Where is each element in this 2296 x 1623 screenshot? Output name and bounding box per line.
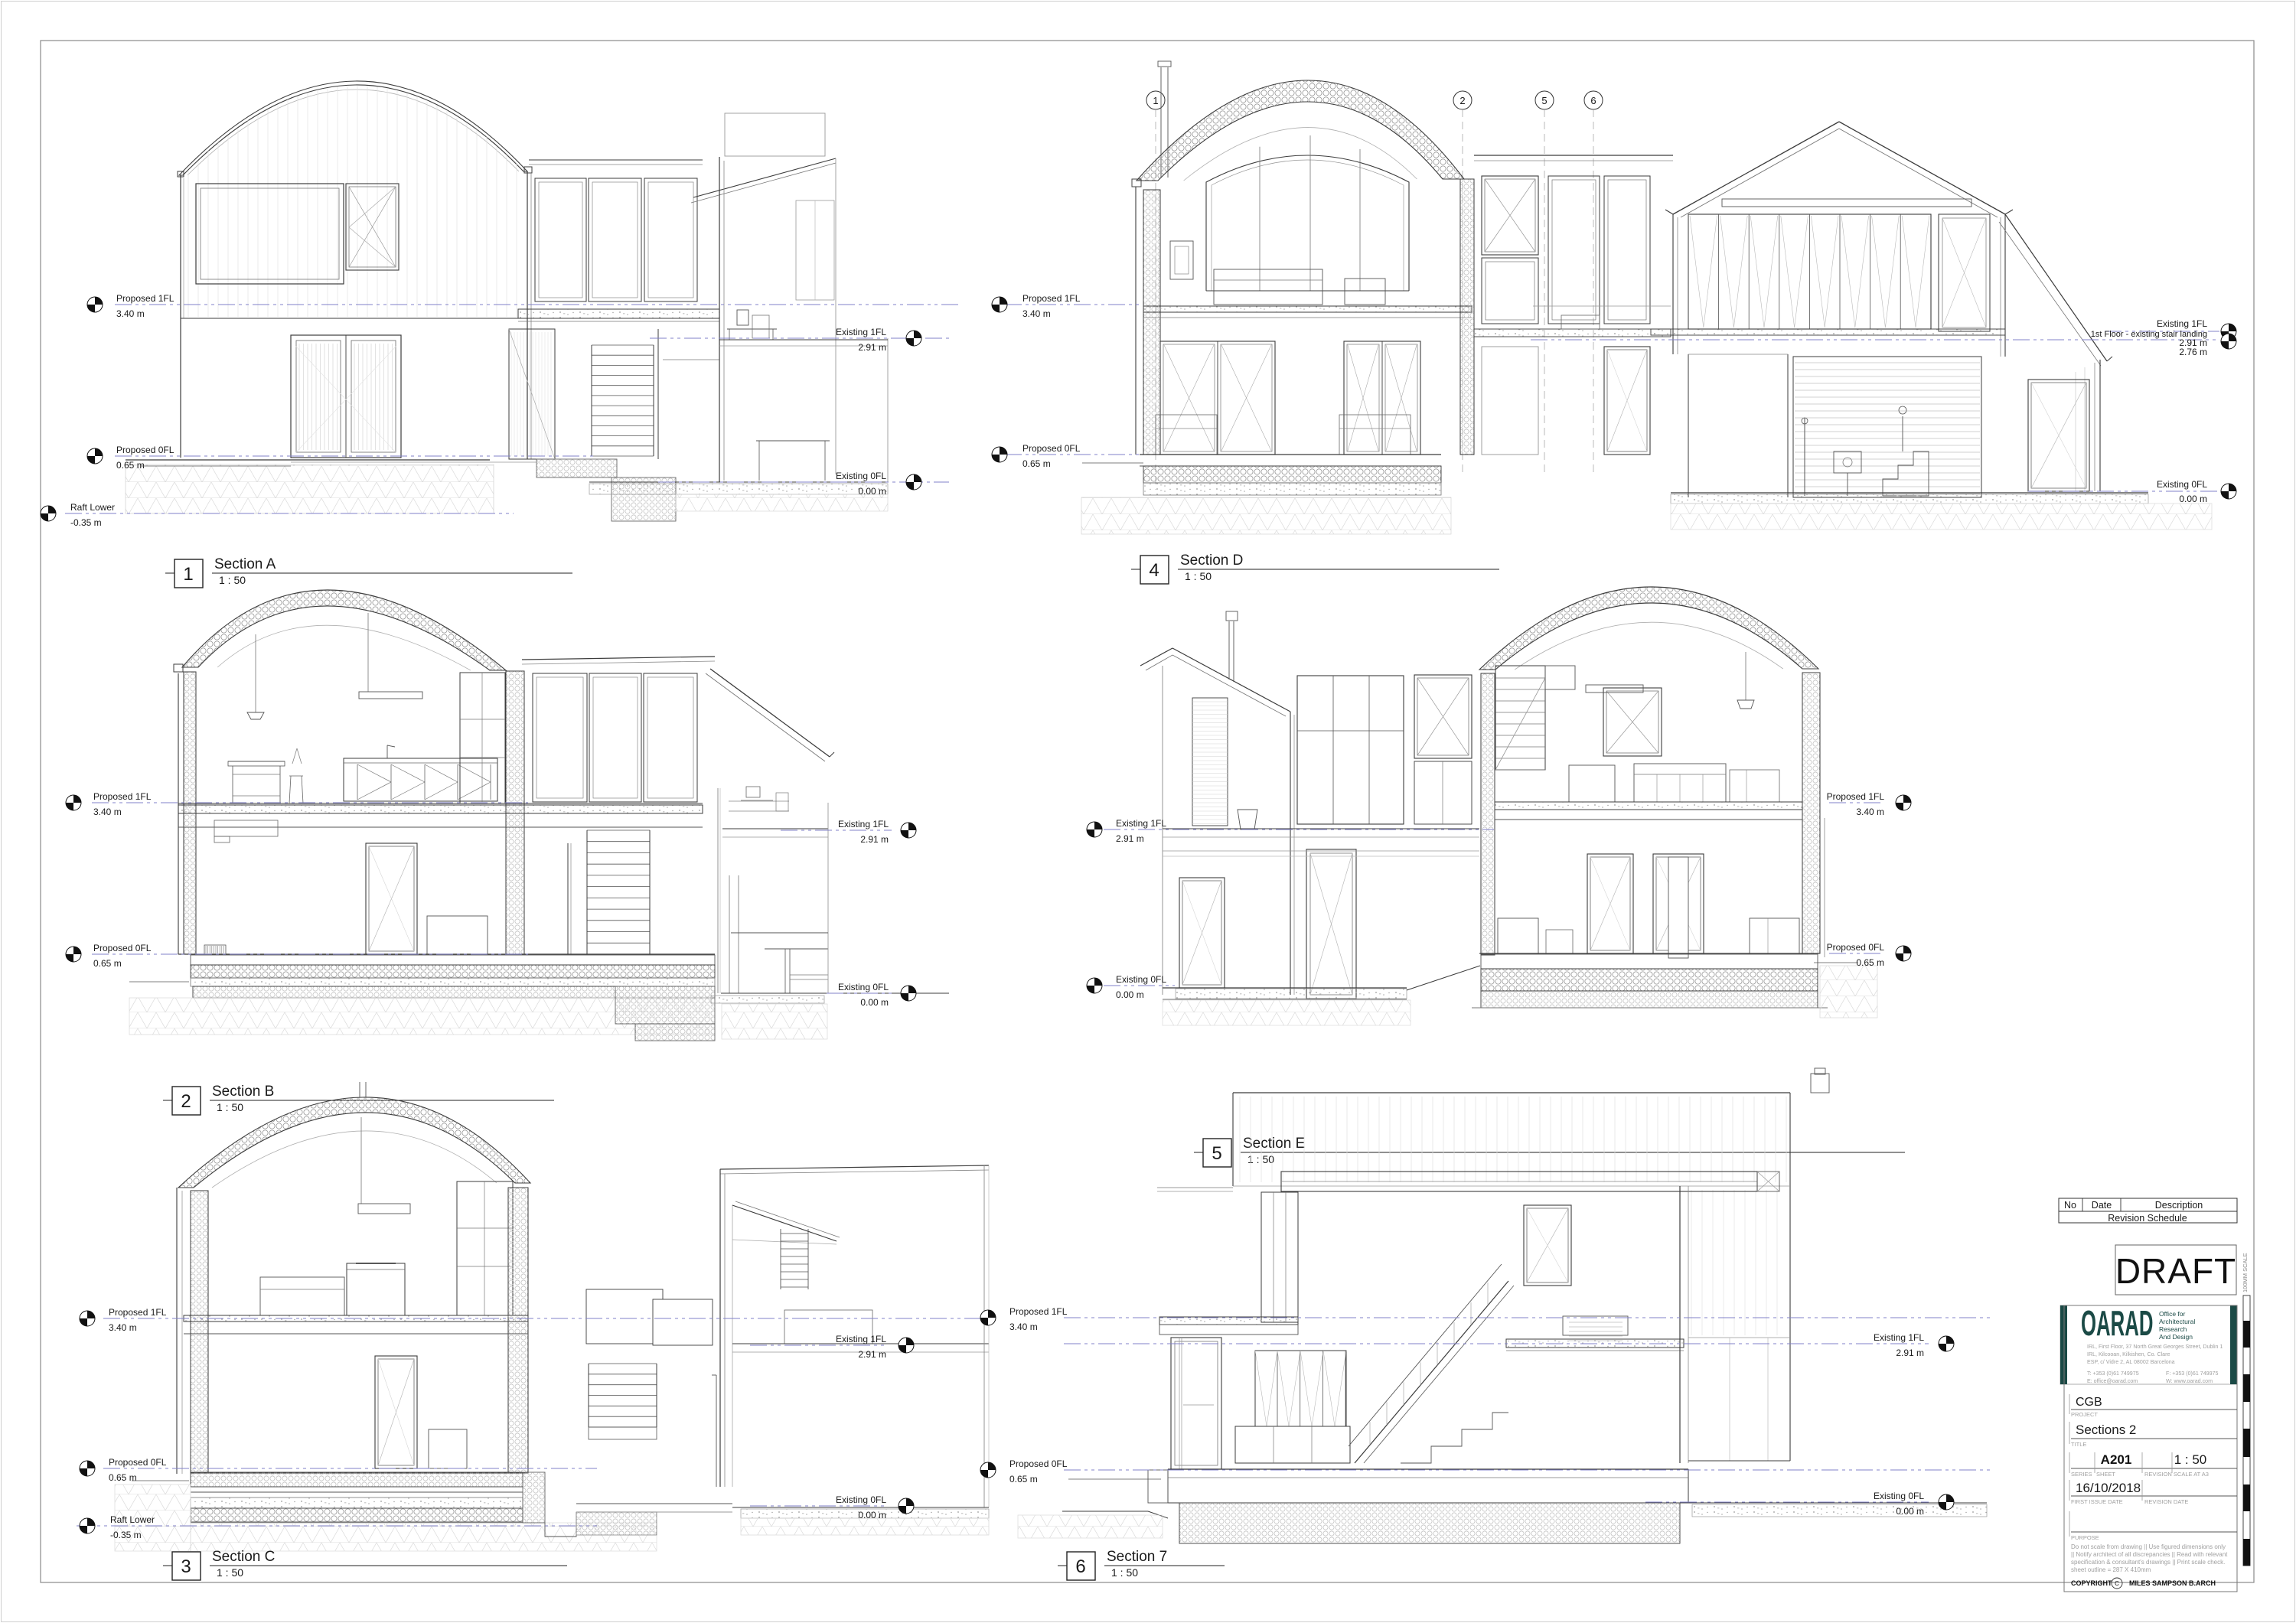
- svg-text:COPYRIGHT: COPYRIGHT: [2071, 1579, 2112, 1587]
- svg-text:0.00 m: 0.00 m: [1896, 1506, 1924, 1517]
- svg-text:No: No: [2064, 1200, 2076, 1211]
- svg-text:0.65 m: 0.65 m: [1009, 1474, 1038, 1484]
- svg-text:Existing 1FL: Existing 1FL: [836, 327, 886, 337]
- svg-text:2: 2: [181, 1091, 191, 1112]
- svg-text:1 : 50: 1 : 50: [1185, 570, 1212, 582]
- svg-text:2.91 m: 2.91 m: [860, 834, 889, 845]
- svg-text:Research: Research: [2159, 1325, 2187, 1333]
- svg-text:1 : 50: 1 : 50: [2174, 1452, 2207, 1467]
- svg-text:6: 6: [1590, 95, 1596, 106]
- svg-text:OARAD: OARAD: [2081, 1303, 2153, 1343]
- svg-text:1 : 50: 1 : 50: [217, 1101, 243, 1113]
- svg-text:ESP, c/ Vidre 2, AL 08002 Barc: ESP, c/ Vidre 2, AL 08002 Barcelona: [2087, 1359, 2175, 1365]
- svg-text:1 : 50: 1 : 50: [217, 1566, 243, 1579]
- svg-text:1: 1: [1153, 95, 1158, 106]
- svg-text:Existing 1FL: Existing 1FL: [2157, 318, 2207, 329]
- svg-text:Description: Description: [2155, 1200, 2203, 1211]
- svg-text:Architectural: Architectural: [2159, 1318, 2195, 1325]
- svg-text:Raft Lower: Raft Lower: [110, 1514, 155, 1525]
- svg-text:T: +353 (0)61 749975: T: +353 (0)61 749975: [2087, 1370, 2139, 1377]
- svg-text:Date: Date: [2092, 1200, 2112, 1211]
- svg-text:-0.35 m: -0.35 m: [110, 1530, 142, 1540]
- svg-text:Proposed 0FL: Proposed 0FL: [1827, 942, 1885, 953]
- svg-text:W: www.oarad.com: W: www.oarad.com: [2166, 1378, 2213, 1384]
- svg-text:Existing 1FL: Existing 1FL: [1116, 818, 1166, 829]
- svg-text:Proposed 0FL: Proposed 0FL: [1009, 1458, 1068, 1469]
- svg-text:4: 4: [1149, 560, 1159, 581]
- svg-text:2.76 m: 2.76 m: [2179, 347, 2207, 357]
- svg-text:0.00 m: 0.00 m: [2179, 494, 2207, 504]
- svg-text:3.40 m: 3.40 m: [1856, 807, 1884, 817]
- svg-text:specification & consultant's d: specification & consultant's drawings ||…: [2071, 1559, 2225, 1566]
- svg-text:SHEET: SHEET: [2096, 1471, 2115, 1478]
- svg-text:3.40 m: 3.40 m: [93, 807, 122, 817]
- svg-text:REVISION DATE: REVISION DATE: [2144, 1498, 2188, 1505]
- svg-text:16/10/2018: 16/10/2018: [2076, 1481, 2141, 1495]
- svg-text:Proposed 0FL: Proposed 0FL: [93, 943, 152, 953]
- svg-text:5: 5: [1212, 1143, 1221, 1164]
- svg-text:IRL, First Floor, 37 North Gre: IRL, First Floor, 37 North Great Georges…: [2087, 1344, 2223, 1350]
- svg-text:Section C: Section C: [212, 1549, 275, 1565]
- svg-text:Existing 1FL: Existing 1FL: [838, 819, 889, 829]
- svg-text:0.65 m: 0.65 m: [116, 460, 145, 471]
- svg-text:Proposed 0FL: Proposed 0FL: [109, 1457, 167, 1468]
- svg-text:CGB: CGB: [2076, 1396, 2102, 1409]
- svg-text:1: 1: [183, 564, 193, 585]
- svg-text:0.65 m: 0.65 m: [1856, 957, 1884, 968]
- svg-text:3.40 m: 3.40 m: [116, 308, 145, 319]
- svg-text:IRL, Kilcooan, Kilkishen, Co.: IRL, Kilcooan, Kilkishen, Co. Clare: [2087, 1351, 2170, 1357]
- svg-text:100MM SCALE: 100MM SCALE: [2242, 1253, 2249, 1292]
- svg-text:3: 3: [181, 1556, 191, 1577]
- svg-text:MILES SAMPSON B.ARCH: MILES SAMPSON B.ARCH: [2129, 1579, 2216, 1587]
- svg-text:A201: A201: [2101, 1452, 2132, 1467]
- svg-text:sheet outline = 287 X 410mm: sheet outline = 287 X 410mm: [2071, 1566, 2151, 1573]
- svg-text:Proposed 1FL: Proposed 1FL: [1022, 293, 1081, 304]
- svg-text:0.00 m: 0.00 m: [858, 1510, 886, 1520]
- svg-text:Proposed 1FL: Proposed 1FL: [116, 293, 174, 304]
- svg-text:Office for: Office for: [2159, 1310, 2185, 1318]
- svg-text:DRAFT: DRAFT: [2115, 1251, 2236, 1291]
- svg-text:2: 2: [1459, 95, 1465, 106]
- svg-text:Section 7: Section 7: [1107, 1549, 1167, 1565]
- svg-text:3.40 m: 3.40 m: [1022, 308, 1051, 319]
- svg-text:Existing 0FL: Existing 0FL: [838, 982, 889, 992]
- svg-text:Existing 1FL: Existing 1FL: [836, 1334, 886, 1344]
- svg-text:E: office@oarad.com: E: office@oarad.com: [2087, 1378, 2138, 1384]
- svg-text:Existing 0FL: Existing 0FL: [2157, 479, 2207, 490]
- svg-text:Revision Schedule: Revision Schedule: [2108, 1213, 2187, 1224]
- svg-text:1 : 50: 1 : 50: [219, 574, 246, 586]
- svg-text:PURPOSE: PURPOSE: [2071, 1534, 2099, 1541]
- svg-text:0.00 m: 0.00 m: [1116, 989, 1144, 1000]
- svg-text:Section B: Section B: [212, 1084, 274, 1100]
- svg-text:0.65 m: 0.65 m: [1022, 458, 1051, 469]
- svg-text:REVISION SCALE AT A3: REVISION SCALE AT A3: [2144, 1471, 2209, 1478]
- svg-text:|| Notify architect of all dis: || Notify architect of all discrepancies…: [2071, 1551, 2228, 1558]
- svg-text:PROJECT: PROJECT: [2071, 1411, 2098, 1418]
- svg-text:1 : 50: 1 : 50: [1111, 1566, 1138, 1579]
- svg-text:Proposed 0FL: Proposed 0FL: [1022, 443, 1081, 454]
- svg-text:Proposed 0FL: Proposed 0FL: [116, 445, 174, 455]
- svg-text:Existing 0FL: Existing 0FL: [1116, 974, 1166, 985]
- svg-text:1 : 50: 1 : 50: [1247, 1153, 1274, 1165]
- svg-text:Sections 2: Sections 2: [2076, 1423, 2136, 1437]
- svg-text:Do not scale from drawing || U: Do not scale from drawing || Use figured…: [2071, 1543, 2226, 1550]
- svg-text:0.00 m: 0.00 m: [860, 997, 889, 1008]
- svg-text:0.65 m: 0.65 m: [93, 958, 122, 969]
- svg-text:Existing 1FL: Existing 1FL: [1874, 1332, 1924, 1343]
- svg-text:2.91 m: 2.91 m: [858, 1349, 886, 1360]
- svg-text:Proposed 1FL: Proposed 1FL: [109, 1307, 167, 1318]
- svg-text:3.40 m: 3.40 m: [1009, 1322, 1038, 1332]
- svg-text:Section E: Section E: [1243, 1136, 1305, 1152]
- svg-text:0.00 m: 0.00 m: [858, 486, 886, 497]
- svg-text:SERIES: SERIES: [2071, 1471, 2092, 1478]
- svg-text:6: 6: [1075, 1556, 1085, 1577]
- svg-text:Existing 0FL: Existing 0FL: [836, 1494, 886, 1505]
- svg-text:2.91 m: 2.91 m: [1116, 833, 1144, 844]
- svg-text:F: +353 (0)61 749975: F: +353 (0)61 749975: [2166, 1370, 2218, 1377]
- svg-text:2.91 m: 2.91 m: [858, 342, 886, 353]
- svg-text:TITLE: TITLE: [2071, 1441, 2086, 1448]
- svg-text:Section D: Section D: [1180, 552, 1243, 569]
- svg-text:Proposed 1FL: Proposed 1FL: [1009, 1306, 1068, 1317]
- svg-text:Proposed 1FL: Proposed 1FL: [93, 791, 152, 802]
- svg-text:3.40 m: 3.40 m: [109, 1322, 137, 1333]
- svg-text:FIRST ISSUE DATE: FIRST ISSUE DATE: [2071, 1498, 2123, 1505]
- svg-text:And Design: And Design: [2159, 1333, 2193, 1341]
- svg-text:2.91 m: 2.91 m: [1896, 1348, 1924, 1358]
- svg-text:Existing 0FL: Existing 0FL: [1874, 1491, 1924, 1501]
- svg-text:0.65 m: 0.65 m: [109, 1472, 137, 1483]
- svg-text:Existing 0FL: Existing 0FL: [836, 471, 886, 481]
- svg-text:Raft Lower: Raft Lower: [70, 502, 115, 513]
- svg-text:Proposed 1FL: Proposed 1FL: [1827, 791, 1885, 802]
- svg-text:5: 5: [1541, 95, 1547, 106]
- svg-text:C: C: [2115, 1580, 2119, 1587]
- svg-text:-0.35 m: -0.35 m: [70, 517, 102, 528]
- svg-text:Section A: Section A: [214, 556, 276, 572]
